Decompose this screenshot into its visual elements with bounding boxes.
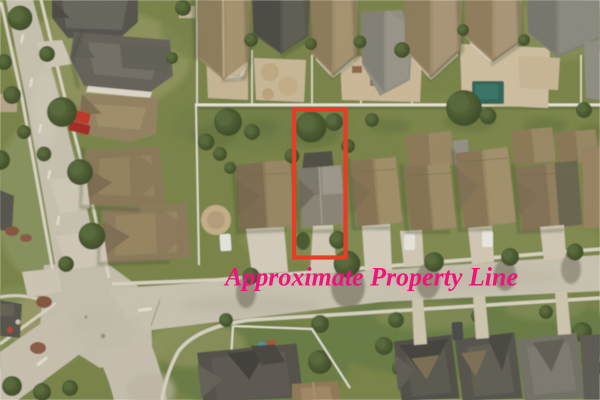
svg-text:Approximate Property Line: Approximate Property Line bbox=[223, 262, 518, 292]
